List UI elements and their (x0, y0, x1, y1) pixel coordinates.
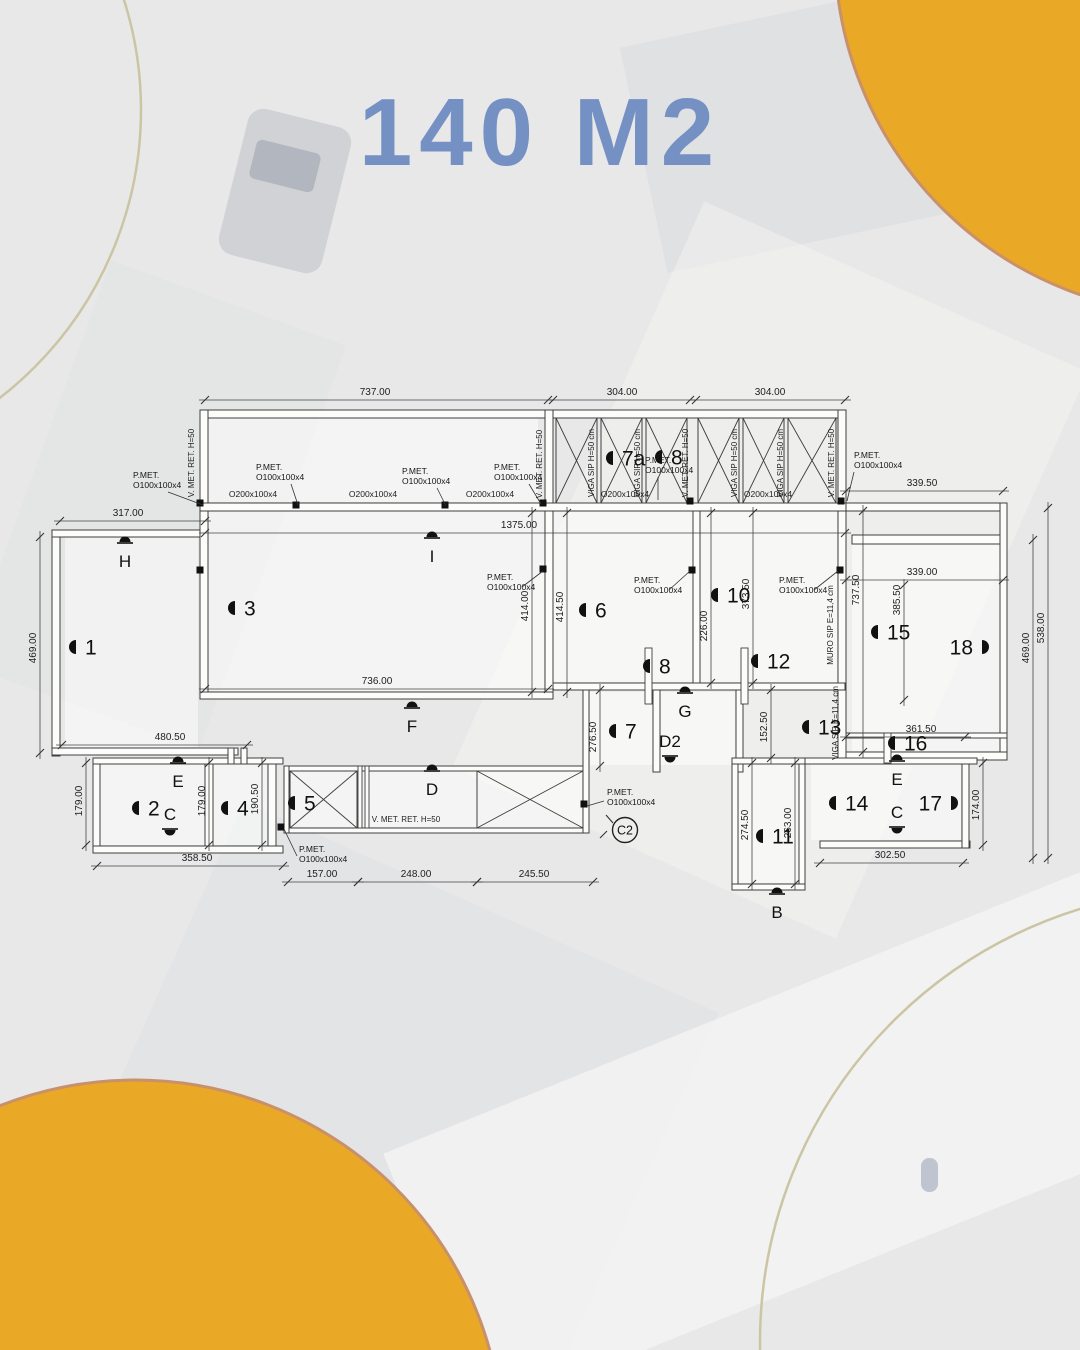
wall-label: V. MET. RET. H=50 (535, 429, 544, 498)
svg-text:737.50: 737.50 (851, 574, 862, 605)
svg-text:302.50: 302.50 (875, 850, 906, 861)
dimension: 469.00 (28, 531, 44, 759)
svg-text:538.00: 538.00 (1036, 612, 1047, 643)
dimension: 469.00 (1021, 534, 1037, 864)
room-marker-13: 13 (802, 717, 841, 740)
wall (732, 758, 738, 890)
wall (200, 692, 553, 699)
dimension: 737.00 (199, 387, 554, 404)
svg-text:5: 5 (304, 793, 316, 816)
wall (838, 410, 846, 511)
wall (200, 511, 208, 699)
svg-text:B: B (771, 903, 782, 922)
svg-text:O100x100x4: O100x100x4 (645, 465, 693, 475)
svg-text:736.00: 736.00 (362, 676, 393, 687)
svg-text:O100x100x4: O100x100x4 (494, 472, 542, 482)
wall-label: VIGA SIP H=50 cm (776, 429, 785, 497)
svg-text:10: 10 (727, 585, 750, 608)
svg-text:O100x100x4: O100x100x4 (299, 854, 347, 864)
dimension: 157.00 (282, 869, 364, 886)
svg-text:179.00: 179.00 (74, 785, 85, 816)
svg-text:248.00: 248.00 (401, 869, 432, 880)
joint-marker (837, 567, 844, 574)
post (645, 648, 652, 704)
svg-text:H: H (119, 552, 131, 571)
beam-label: O200x100x4 (466, 489, 514, 499)
wall (846, 503, 1007, 511)
wall (241, 748, 247, 764)
svg-text:E: E (172, 772, 183, 791)
wall (653, 685, 660, 772)
dimension: 339.50 (840, 478, 1009, 495)
svg-text:8: 8 (659, 656, 671, 679)
wall (553, 683, 845, 690)
post-note: P.MET.O100x100x4 (847, 450, 902, 501)
wall (52, 530, 60, 756)
wall-label: V. MET. RET. H=50 (827, 428, 836, 497)
svg-text:D: D (426, 780, 438, 799)
svg-text:414.50: 414.50 (555, 591, 566, 622)
joint-marker (293, 502, 300, 509)
svg-text:P.MET.: P.MET. (607, 787, 633, 797)
svg-text:276.50: 276.50 (588, 721, 599, 752)
svg-text:152.50: 152.50 (759, 711, 770, 742)
svg-text:17: 17 (919, 793, 942, 816)
svg-text:480.50: 480.50 (155, 732, 186, 743)
svg-text:P.MET.: P.MET. (256, 462, 282, 472)
wall (93, 758, 283, 764)
wall (200, 410, 846, 418)
svg-text:11: 11 (772, 826, 794, 849)
svg-text:174.00: 174.00 (971, 789, 982, 820)
svg-text:304.00: 304.00 (755, 387, 786, 398)
svg-text:179.00: 179.00 (197, 785, 208, 816)
post-note: P.MET.O100x100x4 (587, 787, 655, 807)
floor-plan: 737.00304.00304.00317.001375.00736.00480… (0, 0, 1080, 1350)
svg-text:469.00: 469.00 (28, 632, 39, 663)
wall-label: VIGA SIP H=50 cm (587, 429, 596, 497)
room-marker-7a: 7a (606, 448, 646, 471)
svg-text:F: F (407, 717, 417, 736)
svg-text:18: 18 (950, 637, 973, 660)
wall-label: MURO SIP E=11,4 cm (826, 585, 835, 665)
svg-text:C: C (164, 805, 176, 824)
post (741, 648, 748, 704)
wall (820, 841, 970, 848)
wall (228, 748, 234, 764)
svg-text:385.50: 385.50 (892, 584, 903, 615)
section-marker-C2: C2 (600, 815, 638, 843)
wall-label: V. MET. RET. H=50 (372, 815, 441, 824)
svg-text:P.MET.: P.MET. (854, 450, 880, 460)
dimension: 358.50 (91, 853, 289, 870)
svg-text:7a: 7a (622, 448, 646, 471)
svg-text:O100x100x4: O100x100x4 (634, 585, 682, 595)
dimension: 304.00 (690, 387, 851, 404)
joint-marker (838, 498, 845, 505)
svg-text:4: 4 (237, 798, 249, 821)
svg-text:274.50: 274.50 (740, 809, 751, 840)
svg-text:I: I (430, 547, 435, 566)
svg-text:P.MET.: P.MET. (133, 470, 159, 480)
post-note: P.MET.O100x100x4 (284, 829, 347, 864)
room-fill (208, 511, 544, 691)
dimension: 248.00 (352, 869, 483, 886)
svg-text:7: 7 (625, 721, 637, 744)
svg-text:190.50: 190.50 (250, 783, 261, 814)
svg-text:E: E (891, 770, 902, 789)
svg-text:P.MET.: P.MET. (487, 572, 513, 582)
dimension: 304.00 (547, 387, 696, 404)
svg-text:339.00: 339.00 (907, 567, 938, 578)
svg-text:8: 8 (671, 447, 683, 470)
svg-text:P.MET.: P.MET. (494, 462, 520, 472)
svg-text:157.00: 157.00 (307, 869, 338, 880)
svg-text:C2: C2 (617, 824, 633, 838)
svg-text:P.MET.: P.MET. (779, 575, 805, 585)
svg-text:358.50: 358.50 (182, 853, 213, 864)
beam-label: O200x100x4 (744, 489, 792, 499)
svg-text:414.00: 414.00 (520, 590, 531, 621)
wall (284, 766, 289, 833)
axis-marker-G: G (677, 687, 693, 722)
dimension: 317.00 (54, 508, 211, 525)
svg-text:P.MET.: P.MET. (402, 466, 428, 476)
wall (545, 511, 553, 699)
svg-text:469.00: 469.00 (1021, 632, 1032, 663)
joint-marker (581, 801, 588, 808)
svg-text:737.00: 737.00 (360, 387, 391, 398)
dimension: 174.00 (971, 757, 987, 851)
post (365, 766, 369, 828)
wall (286, 828, 588, 833)
joint-marker (278, 824, 285, 831)
svg-text:14: 14 (845, 793, 869, 816)
svg-text:O100x100x4: O100x100x4 (779, 585, 827, 595)
svg-text:12: 12 (767, 651, 790, 674)
wall (52, 530, 205, 537)
svg-text:D2: D2 (659, 732, 681, 751)
wall (852, 535, 1000, 544)
dimension: 179.00 (74, 757, 90, 851)
svg-text:245.50: 245.50 (519, 869, 550, 880)
beam-label: O200x100x4 (229, 489, 277, 499)
joint-marker (442, 502, 449, 509)
post (358, 766, 362, 828)
wall (693, 511, 700, 690)
svg-text:1: 1 (85, 637, 97, 660)
svg-text:16: 16 (904, 733, 927, 756)
svg-text:O100x100x4: O100x100x4 (256, 472, 304, 482)
beam-label: O200x100x4 (349, 489, 397, 499)
dimension: 152.50 (759, 684, 775, 764)
svg-text:P.MET.: P.MET. (634, 575, 660, 585)
svg-text:13: 13 (818, 717, 841, 740)
wall (200, 410, 208, 511)
post (884, 733, 891, 763)
svg-text:O100x100x4: O100x100x4 (487, 582, 535, 592)
svg-text:O100x100x4: O100x100x4 (607, 797, 655, 807)
wall (93, 846, 283, 853)
wall (52, 748, 238, 755)
dimension: 538.00 (1036, 502, 1052, 864)
axis-marker-B: B (769, 888, 785, 922)
beam-label: O200x100x4 (601, 489, 649, 499)
svg-text:15: 15 (887, 622, 910, 645)
dimension: 302.50 (814, 850, 969, 867)
axis-marker-F: F (404, 702, 420, 737)
joint-marker (687, 498, 694, 505)
svg-text:3: 3 (244, 598, 256, 621)
wall (799, 758, 805, 890)
wall (268, 764, 276, 846)
svg-text:2: 2 (148, 798, 160, 821)
svg-text:317.00: 317.00 (113, 508, 144, 519)
poster: 140 M2 737.00304.00304.00317.001375.0073… (0, 0, 1080, 1350)
svg-text:O100x100x4: O100x100x4 (133, 480, 181, 490)
svg-text:O100x100x4: O100x100x4 (402, 476, 450, 486)
wall (1000, 503, 1007, 760)
wall-label: VIGA SIP H=50 cm (730, 429, 739, 497)
wall (583, 690, 589, 833)
dimension: 245.50 (471, 869, 599, 886)
wall-label: V. MET. RET. H=50 (187, 428, 196, 497)
svg-text:304.00: 304.00 (607, 387, 638, 398)
svg-text:G: G (678, 702, 691, 721)
wall (545, 410, 553, 511)
wall (93, 758, 100, 853)
svg-text:6: 6 (595, 600, 607, 623)
joint-marker (689, 567, 696, 574)
svg-text:226.00: 226.00 (699, 610, 710, 641)
svg-text:C: C (891, 803, 903, 822)
joint-marker (197, 567, 204, 574)
svg-text:339.50: 339.50 (907, 478, 938, 489)
wall (962, 764, 969, 848)
svg-text:P.MET.: P.MET. (299, 844, 325, 854)
svg-text:O100x100x4: O100x100x4 (854, 460, 902, 470)
